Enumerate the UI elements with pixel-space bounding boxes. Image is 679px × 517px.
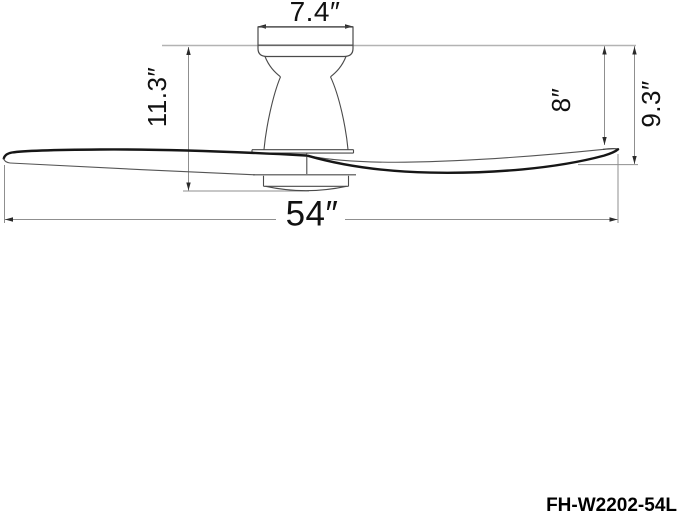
fan-dimension-diagram: 7.4″ 11.3″ 8″ 9.3″ 54″ FH-W2202-54L bbox=[0, 0, 679, 517]
fan-line-drawing bbox=[0, 0, 679, 517]
light-kit bbox=[264, 176, 349, 191]
dimension-label-9-3in: 9.3″ bbox=[638, 80, 664, 127]
dimension-arrows bbox=[5, 24, 637, 221]
dimension-label-8in: 8″ bbox=[548, 88, 574, 113]
right-blade bbox=[308, 149, 618, 173]
dimension-label-canopy-width: 7.4″ bbox=[290, 0, 341, 26]
left-blade bbox=[4, 149, 306, 174]
canopy bbox=[258, 27, 353, 77]
dimension-label-left-height: 11.3″ bbox=[144, 67, 170, 127]
dimension-label-blade-span: 54″ bbox=[286, 197, 339, 232]
model-number: FH-W2202-54L bbox=[546, 495, 677, 517]
